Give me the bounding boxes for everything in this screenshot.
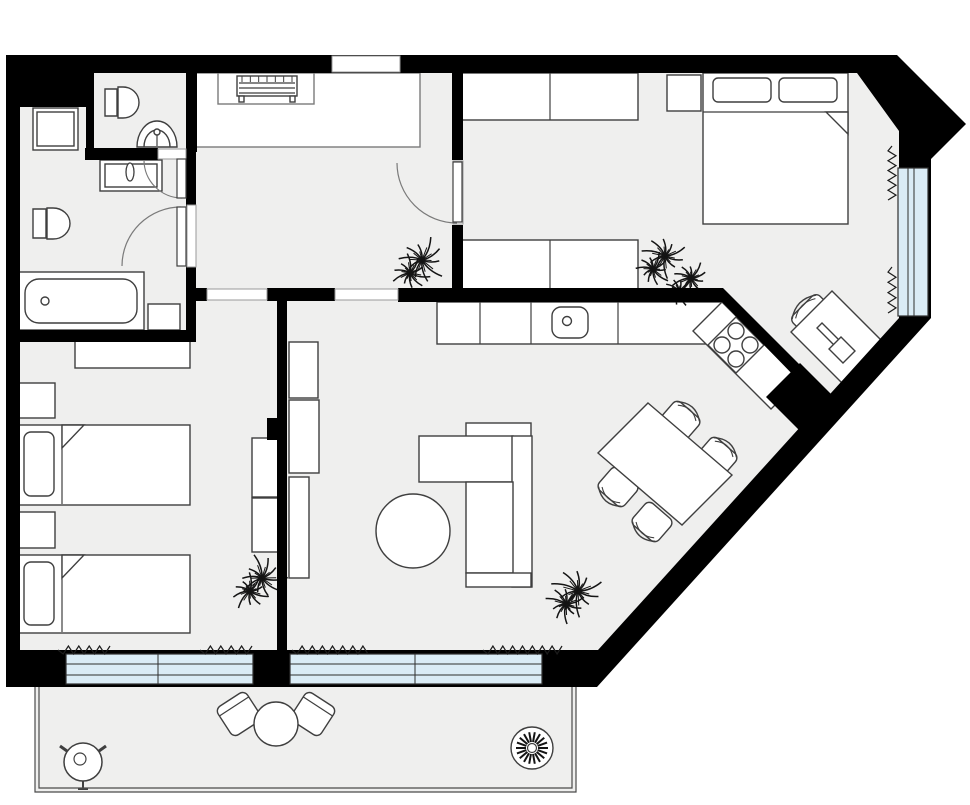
bathtub-drain [41, 297, 49, 305]
vanity-knob [126, 163, 134, 181]
floor-plan-page [0, 0, 970, 805]
wc-door-opening [158, 149, 186, 159]
apartment-floor-plan [0, 0, 970, 805]
bedroom1-window [66, 654, 253, 684]
washing-machine-inner [37, 112, 74, 146]
stove-burner-4 [714, 337, 730, 353]
bedroom1-nightstand-1 [18, 383, 55, 418]
bedroom2-window [898, 168, 928, 316]
toilet-bathroom [33, 208, 70, 239]
bedroom1-wardrobe-2 [252, 498, 280, 552]
sofa-seat [466, 482, 513, 573]
wc-west-stub-wall [86, 105, 94, 153]
stove-burner-1 [728, 323, 744, 339]
bedroom1-bed-1-pillow [24, 432, 54, 496]
bathroom-east-wall-upper [186, 152, 196, 207]
bedroom1-wardrobe-1 [252, 438, 280, 497]
entry-bench-leg-right [290, 96, 295, 102]
bedroom1-nightstand-2 [18, 512, 55, 548]
living-window [290, 654, 542, 684]
bedroom2-nightstand [667, 75, 701, 111]
wc-south-wall [85, 148, 158, 160]
stove-burner-3 [728, 351, 744, 367]
kitchen-sink-faucet [563, 317, 572, 326]
bathroom-door-opening [187, 205, 196, 267]
balcony-table [254, 702, 298, 746]
coffee-table [376, 494, 450, 568]
bedroom1-door-opening [207, 289, 267, 300]
bedroom2-pillow-right [779, 78, 837, 102]
entrance-door-opening [332, 56, 400, 72]
living-west-wall-jog [267, 418, 279, 440]
sofa-back-top [466, 423, 531, 437]
toilet-wc [105, 87, 139, 118]
sofa-armrest [466, 573, 531, 587]
balcony-potted-plant [511, 727, 553, 769]
living-shelf-3 [289, 477, 309, 578]
sofa-back-right [512, 436, 532, 587]
bedroom2-pillow-left [713, 78, 771, 102]
bathroom-cabinet [148, 304, 180, 330]
kitchen-north-wall [398, 288, 723, 302]
bedroom1-bed-2-pillow [24, 562, 54, 625]
bedroom1-desk [75, 340, 190, 368]
living-shelf-1 [289, 342, 318, 398]
living-shelf-2 [289, 400, 319, 473]
entry-bench-leg-left [239, 96, 244, 102]
living-passage-opening [335, 289, 398, 300]
sofa-chaise [419, 436, 513, 482]
stove-burner-2 [742, 337, 758, 353]
bedroom2-west-wall-lower [452, 225, 463, 289]
living-west-wall [277, 299, 287, 654]
bathroom-south-wall [6, 330, 196, 342]
corner-sink-faucet [154, 129, 160, 135]
hall-south-wall-west [196, 288, 207, 301]
